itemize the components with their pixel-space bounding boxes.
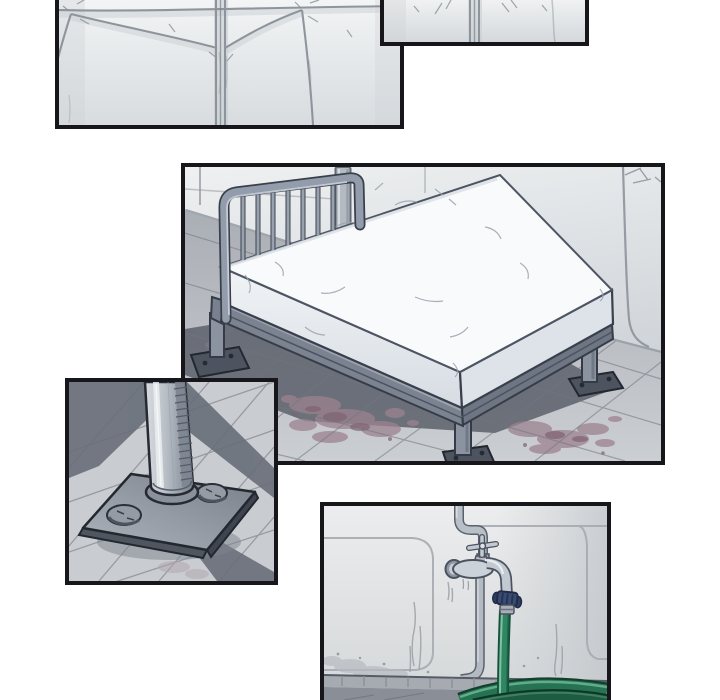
bolt-left bbox=[107, 505, 141, 525]
wall-tiles-art bbox=[59, 0, 400, 125]
faucet-hose-art bbox=[324, 506, 607, 700]
tile-face bbox=[59, 0, 400, 125]
hose bbox=[500, 610, 509, 700]
bolted-leg-art bbox=[69, 382, 274, 581]
leg-cylinder bbox=[145, 382, 193, 495]
panel-wall-tiles-wide bbox=[55, 0, 404, 129]
wall-tiles-sliver-art bbox=[384, 0, 585, 42]
bolt-right bbox=[197, 484, 227, 502]
tile-shade-left bbox=[384, 0, 406, 42]
panel-faucet-hose bbox=[320, 502, 611, 700]
webtoon-page bbox=[0, 0, 720, 700]
hose-body bbox=[503, 610, 505, 700]
hose-coupling bbox=[500, 605, 514, 614]
panel-bolted-leg-closeup bbox=[65, 378, 278, 585]
panel-wall-tiles-sliver bbox=[380, 0, 589, 46]
